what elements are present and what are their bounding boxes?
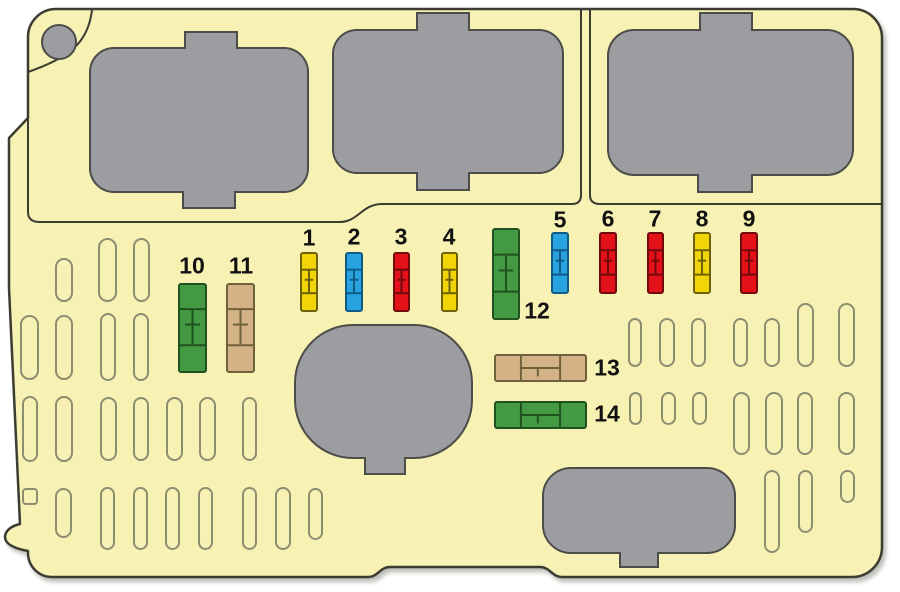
- empty-fuse-slot: [838, 303, 855, 367]
- empty-fuse-slot: [838, 392, 855, 455]
- empty-fuse-slot: [242, 487, 257, 550]
- empty-fuse-slot: [55, 258, 73, 302]
- empty-fuse-slot: [692, 392, 707, 425]
- empty-fuse-slot: [691, 318, 706, 367]
- fuse-label-8: 8: [696, 208, 709, 231]
- empty-fuse-slot: [764, 318, 780, 367]
- empty-fuse-slot: [20, 315, 39, 380]
- empty-fuse-slot: [100, 487, 115, 550]
- empty-fuse-slot: [55, 396, 73, 462]
- empty-fuse-slot: [199, 397, 216, 461]
- empty-fuse-slot: [840, 470, 855, 503]
- empty-fuse-slot: [22, 396, 38, 462]
- fuse-8: [693, 232, 711, 294]
- empty-fuse-slot: [798, 470, 813, 533]
- fuse-13: [494, 354, 587, 382]
- fuse-label-11: 11: [229, 255, 253, 278]
- empty-fuse-slot: [100, 313, 116, 381]
- empty-fuse-slot: [133, 313, 149, 381]
- empty-fuse-slot: [275, 487, 291, 550]
- fuse-label-7: 7: [649, 208, 662, 231]
- empty-fuse-slot: [797, 392, 813, 455]
- empty-fuse-slot: [629, 392, 642, 425]
- fuse-label-3: 3: [395, 226, 408, 249]
- empty-fuse-slot: [165, 487, 180, 550]
- fuse-label-1: 1: [303, 227, 316, 250]
- fuse-box-diagram: 1234567891011121314: [0, 0, 900, 592]
- fuse-label-10: 10: [179, 255, 205, 278]
- fuse-11: [226, 283, 255, 373]
- empty-fuse-slot: [55, 488, 72, 538]
- fuse-label-13: 13: [594, 357, 620, 380]
- empty-fuse-slot: [55, 315, 73, 380]
- empty-fuse-slot: [659, 318, 675, 367]
- empty-fuse-slot: [764, 470, 780, 553]
- fuse-6: [599, 232, 617, 294]
- empty-fuse-slot: [242, 397, 257, 461]
- empty-fuse-slot: [133, 238, 150, 302]
- fuse-label-14: 14: [594, 403, 620, 426]
- fuse-label-6: 6: [602, 208, 615, 231]
- fuse-label-2: 2: [348, 226, 361, 249]
- empty-fuse-slot: [166, 397, 183, 461]
- fuse-14: [494, 401, 587, 429]
- empty-fuse-slot: [628, 318, 642, 367]
- fuse-3: [393, 252, 410, 312]
- fuse-10: [178, 283, 207, 373]
- fuse-7: [647, 232, 664, 294]
- empty-fuse-slot: [133, 487, 148, 550]
- empty-fuse-slot: [797, 303, 814, 367]
- empty-fuse-slot: [661, 392, 676, 425]
- fuse-label-5: 5: [554, 209, 567, 232]
- empty-fuse-slot: [308, 488, 323, 540]
- empty-fuse-slot: [733, 392, 750, 455]
- fuse-1: [300, 252, 318, 312]
- fuse-label-9: 9: [743, 208, 756, 231]
- empty-fuse-slot: [198, 487, 213, 550]
- fuse-label-12: 12: [524, 300, 550, 323]
- fuse-12: [492, 228, 520, 320]
- empty-slot-square: [22, 488, 38, 505]
- empty-fuse-slot: [765, 392, 783, 455]
- fuse-label-4: 4: [443, 226, 456, 249]
- empty-fuse-slot: [133, 397, 149, 461]
- fuse-2: [345, 252, 363, 312]
- fuse-4: [441, 252, 458, 312]
- empty-fuse-slot: [100, 397, 117, 461]
- empty-fuse-slot: [98, 238, 117, 302]
- empty-fuse-slot: [733, 318, 748, 367]
- fuse-9: [740, 232, 758, 294]
- fuse-overlay: 1234567891011121314: [0, 0, 900, 592]
- fuse-5: [551, 232, 569, 294]
